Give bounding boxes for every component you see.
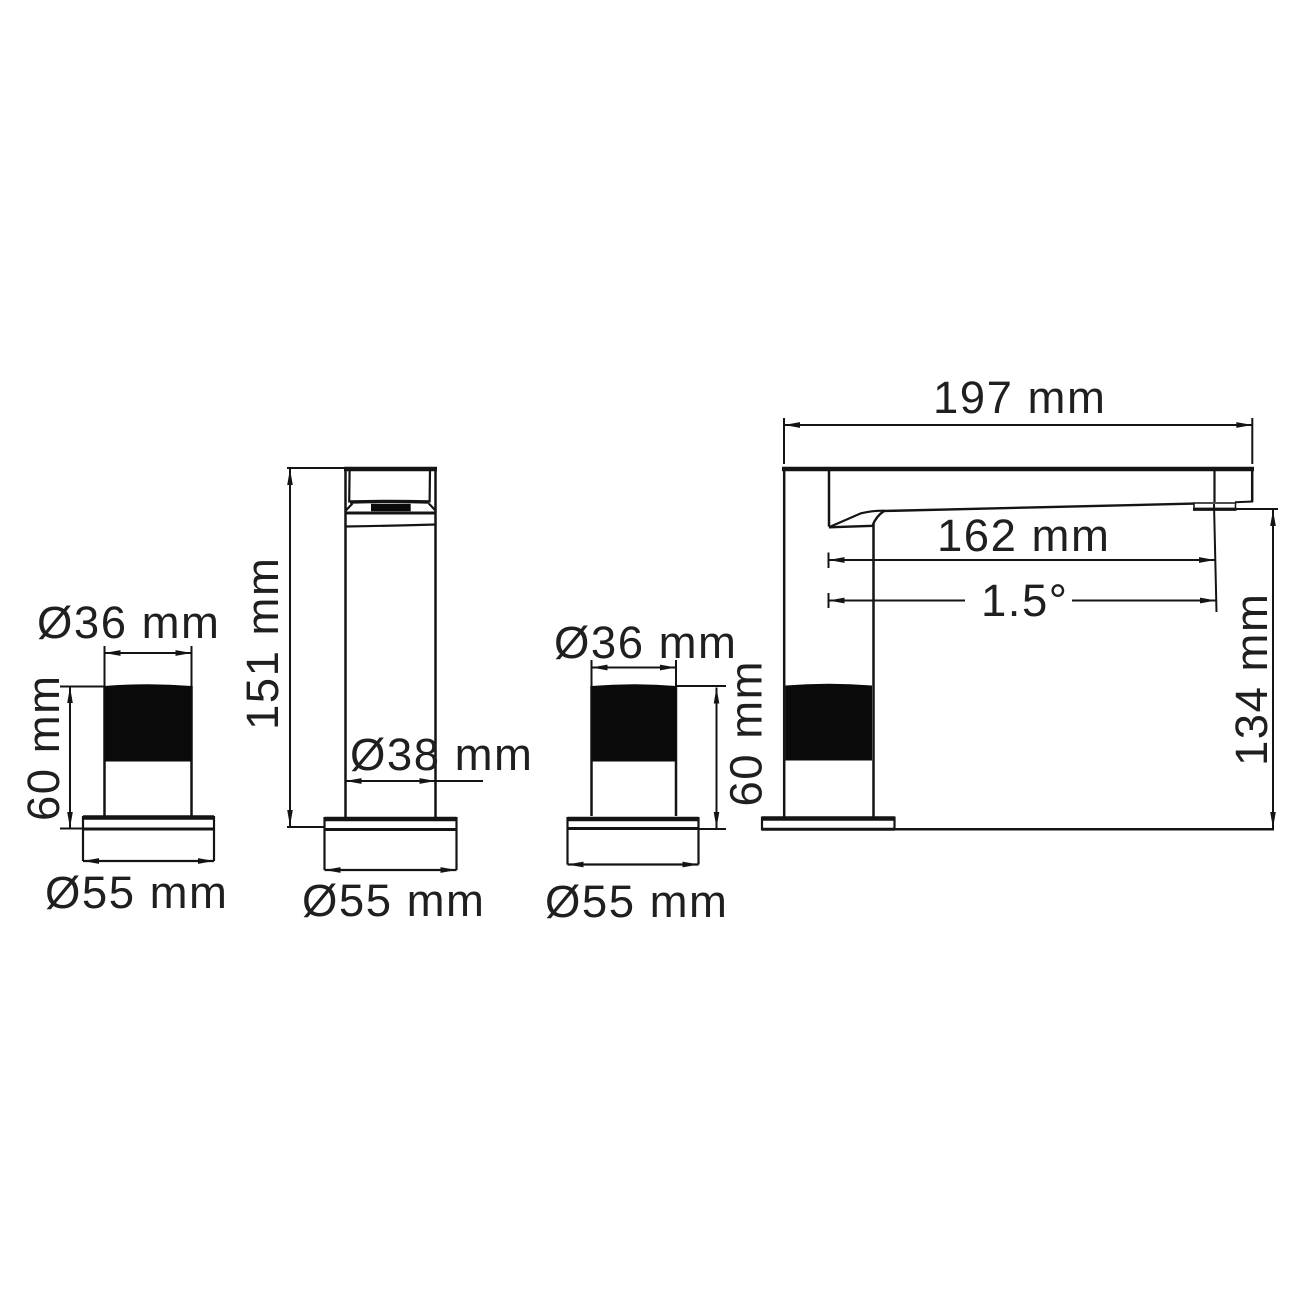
svg-text:134 mm: 134 mm [1226, 593, 1277, 766]
svg-text:162 mm: 162 mm [937, 510, 1110, 561]
svg-text:60 mm: 60 mm [721, 660, 772, 807]
svg-text:1.5°: 1.5° [981, 575, 1068, 626]
svg-text:Ø36 mm: Ø36 mm [554, 617, 737, 668]
svg-text:Ø55 mm: Ø55 mm [45, 867, 228, 918]
svg-text:151 mm: 151 mm [237, 557, 288, 730]
svg-text:197 mm: 197 mm [933, 372, 1106, 423]
svg-text:Ø36 mm: Ø36 mm [37, 597, 220, 648]
svg-text:60 mm: 60 mm [18, 674, 69, 821]
svg-text:Ø55 mm: Ø55 mm [545, 876, 728, 927]
svg-text:Ø55 mm: Ø55 mm [302, 875, 485, 926]
svg-text:Ø38 mm: Ø38 mm [350, 729, 533, 780]
